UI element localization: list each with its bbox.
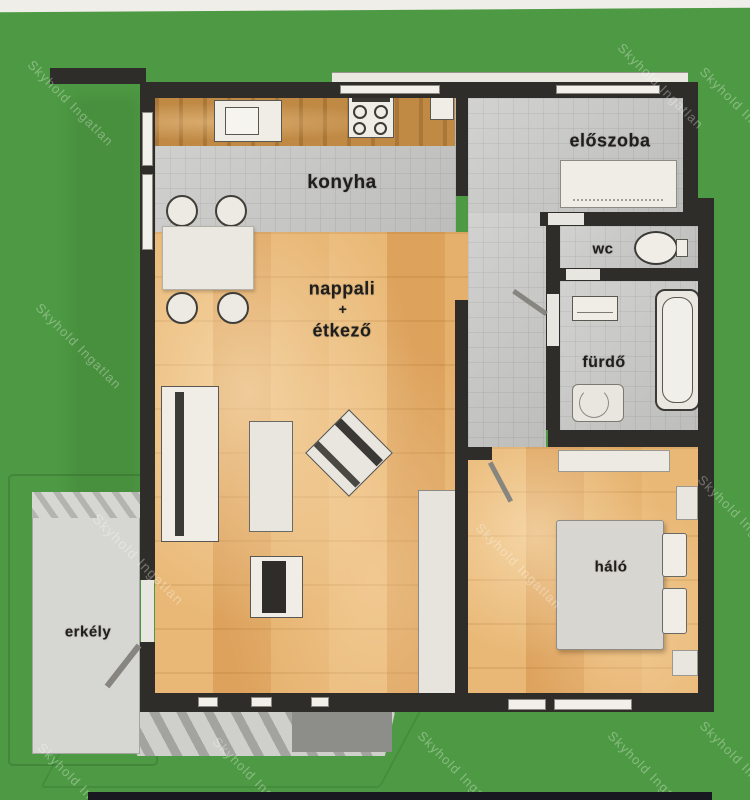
floor-plan-image: konyha előszoba wc fürdő nappali + étkez… — [0, 0, 750, 800]
watermark-text: Skyhold Ingatlan — [697, 64, 750, 156]
watermark-text: Skyhold Ingatlan — [473, 520, 565, 612]
watermark-text: Skyhold Ingatlan — [33, 300, 125, 392]
watermark-text: Skyhold Ingatlan — [415, 728, 507, 800]
watermark-text: Skyhold Ingatlan — [695, 472, 750, 564]
watermark-text: Skyhold Ingatlan — [697, 718, 750, 800]
watermark-layer: Skyhold IngatlanSkyhold IngatlanSkyhold … — [0, 0, 750, 800]
watermark-text: Skyhold Ingatlan — [89, 510, 187, 608]
watermark-text: Skyhold Ingatlan — [25, 57, 117, 149]
watermark-text: Skyhold Ingatlan — [210, 734, 302, 800]
watermark-text: Skyhold Ingatlan — [615, 40, 707, 132]
scan-bottom-strip — [88, 792, 712, 800]
watermark-text: Skyhold Ingatlan — [605, 728, 697, 800]
